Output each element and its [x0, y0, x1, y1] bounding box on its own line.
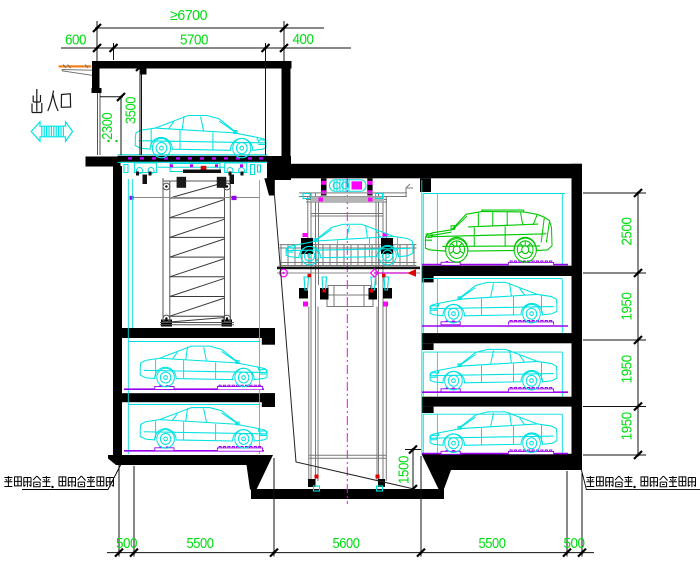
svg-text:1950: 1950: [619, 412, 636, 440]
svg-text:1950: 1950: [619, 292, 636, 320]
svg-text:1950: 1950: [619, 355, 636, 383]
svg-text:≥6700: ≥6700: [170, 7, 207, 24]
svg-text:5500: 5500: [187, 535, 214, 552]
svg-text:2300: 2300: [99, 113, 116, 140]
svg-text:5500: 5500: [479, 535, 506, 552]
svg-text:600: 600: [65, 32, 86, 49]
svg-text:5700: 5700: [180, 32, 208, 49]
svg-text:400: 400: [293, 31, 314, 48]
svg-text:500: 500: [116, 535, 137, 552]
svg-text:5600: 5600: [333, 535, 360, 552]
svg-text:1500: 1500: [396, 456, 413, 484]
svg-text:500: 500: [564, 535, 585, 552]
svg-text:2500: 2500: [619, 217, 636, 245]
svg-text:3500: 3500: [123, 97, 140, 124]
